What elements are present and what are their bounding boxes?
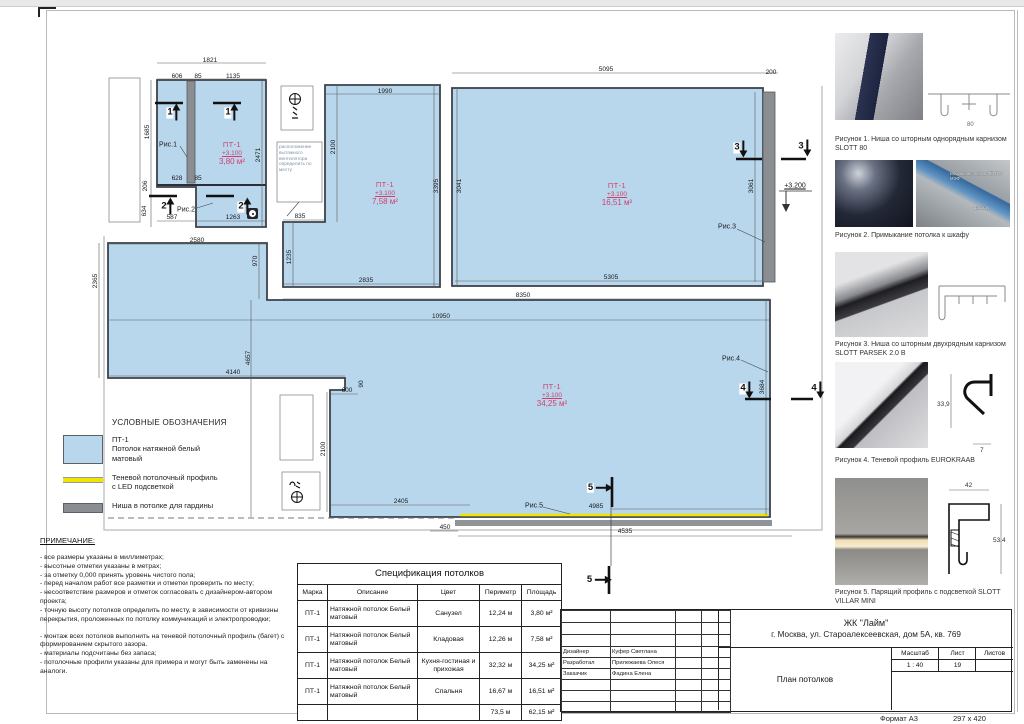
- spec-cell: ПТ-1: [298, 601, 328, 627]
- title-block-cell: [611, 611, 676, 623]
- curtain-niche-bathroom: [187, 81, 195, 183]
- spec-cell: ПТ-1: [298, 679, 328, 705]
- title-block-cell: [611, 635, 676, 647]
- level-arrow: [779, 191, 812, 212]
- spec-header-cell: Цвет: [418, 585, 480, 601]
- figure-4-diagram: 33,9 7: [935, 366, 1009, 454]
- figure-5-dim-w: 42: [965, 482, 973, 489]
- project-address: г. Москва, ул. Староалексеевская, дом 5А…: [771, 630, 961, 639]
- scale-value: 1 : 40: [891, 660, 938, 672]
- figure-2-caption: Рисунок 2. Примыкание потолка к шкафу: [835, 231, 1013, 240]
- note-line: [40, 625, 296, 633]
- title-block-cell: [676, 623, 702, 635]
- title-block-row: [562, 702, 731, 713]
- title-block-row: [562, 635, 731, 647]
- title-block-cell: [562, 691, 611, 702]
- spec-total-cell: 62,15 м²: [522, 705, 562, 721]
- title-block-cell: [676, 669, 702, 680]
- figure-5-photo: [835, 478, 928, 585]
- notes-title: ПРИМЕЧАНИЕ:: [40, 536, 296, 545]
- legend-swatch: [63, 473, 103, 483]
- exhaust-fan-icon: [247, 208, 258, 219]
- figure-2-photo-right: Вобранная плёнка ЛЕОТУ/МЭФ фасадь: [916, 160, 1010, 227]
- title-block-cell: Куфер Светлана: [611, 647, 676, 658]
- figure-4-dim-w: 7: [980, 447, 984, 454]
- figure-5-caption: Рисунок 5. Парящий профиль с подсветкой …: [835, 588, 1013, 606]
- figure-4-dim-h: 33,9: [937, 401, 950, 408]
- figure-2-photo-label-2: фасадь: [974, 206, 989, 211]
- drawing-title: План потолков: [718, 648, 891, 710]
- spec-total-cell: 73,5 м: [480, 705, 522, 721]
- title-block-cell: Дизайнер: [562, 647, 611, 658]
- title-block-cell: [562, 611, 611, 623]
- note-line: - материалы подсчитаны без запаса;: [40, 650, 296, 659]
- spec-cell: Натяжной потолок Белый матовый: [328, 601, 418, 627]
- figure-5: 42 53.4 Рисунок 5. Парящий профиль с под…: [835, 476, 1013, 608]
- sheet-label: Лист: [938, 648, 976, 660]
- sheets-value: [975, 660, 1013, 672]
- figure-1-caption: Рисунок 1. Ниша со шторным однорядным ка…: [835, 135, 1013, 153]
- title-block-cell: [676, 680, 702, 691]
- title-block-row: РазработалПрилежаева Олеся: [562, 658, 731, 669]
- spec-row: ПТ-1Натяжной потолок Белый матовыйСпальн…: [298, 679, 562, 705]
- title-block-row: ЗаказчикФадина Елена: [562, 669, 731, 680]
- figure-1-dim: 80: [967, 122, 974, 128]
- figure-3: Рисунок 3. Ниша со шторным двухрядным ка…: [835, 250, 1013, 358]
- spec-cell: Кладовая: [418, 627, 480, 653]
- title-block-cell: Прилежаева Олеся: [611, 658, 676, 669]
- figure-3-diagram: [931, 276, 1011, 334]
- figure-5-diagram: 42 53.4: [935, 478, 1009, 588]
- figure-1: 80 Рисунок 1. Ниша со шторным однорядным…: [835, 33, 1013, 158]
- title-block-row: [562, 691, 731, 702]
- spec-cell: 7,58 м²: [522, 627, 562, 653]
- title-block-row: [562, 680, 731, 691]
- title-block-cell: [611, 623, 676, 635]
- window-wall-bar: [455, 520, 772, 526]
- spec-cell: Санузел: [418, 601, 480, 627]
- project-name: ЖК "Лайм": [844, 618, 889, 628]
- title-block-row: [562, 623, 731, 635]
- spec-cell: Спальня: [418, 679, 480, 705]
- spec-header-cell: Периметр: [480, 585, 522, 601]
- spec-header-cell: Площадь: [522, 585, 562, 601]
- note-line: - несоответствие размеров и отметок согл…: [40, 589, 296, 607]
- legend-title: УСЛОВНЫЕ ОБОЗНАЧЕНИЯ: [112, 418, 298, 427]
- legend-swatch: [63, 435, 103, 464]
- spec-row: ПТ-1Натяжной потолок Белый матовыйКладов…: [298, 627, 562, 653]
- note-line: - монтаж всех потолков выполнить на тене…: [40, 633, 296, 651]
- spec-cell: 16,51 м²: [522, 679, 562, 705]
- spec-total-cell: [418, 705, 480, 721]
- title-block-cell: [611, 702, 676, 713]
- spec-table: Спецификация потолков МаркаОписаниеЦветП…: [297, 563, 562, 721]
- spec-cell: 12,26 м: [480, 627, 522, 653]
- spec-row: ПТ-1Натяжной потолок Белый матовыйСанузе…: [298, 601, 562, 627]
- title-block-row: ДизайнерКуфер Светлана: [562, 647, 731, 658]
- spec-cell: Натяжной потолок Белый матовый: [328, 627, 418, 653]
- title-block-cell: [676, 702, 702, 713]
- spec-cell: 16,67 м: [480, 679, 522, 705]
- title-block-cell: Разработал: [562, 658, 611, 669]
- sheets-label: Листов: [975, 648, 1013, 660]
- legend-item-label: Ниша в потолке для гардины: [112, 501, 213, 510]
- legend-item: Теневой потолочный профиль с LED подсвет…: [63, 473, 298, 492]
- spec-cell: 32,32 м: [480, 653, 522, 679]
- legend: УСЛОВНЫЕ ОБОЗНАЧЕНИЯ ПТ-1 Потолок натяжн…: [63, 418, 298, 522]
- title-block-cell: [611, 680, 676, 691]
- spec-cell: 34,25 м²: [522, 653, 562, 679]
- legend-swatch-fill: [63, 435, 103, 464]
- sheet-value: 19: [938, 660, 976, 672]
- spec-cell: Натяжной потолок Белый матовый: [328, 653, 418, 679]
- spec-cell: Натяжной потолок Белый матовый: [328, 679, 418, 705]
- spec-header-row: МаркаОписаниеЦветПериметрПлощадь: [298, 585, 562, 601]
- room-bedroom: [452, 88, 763, 286]
- figure-4-caption: Рисунок 4. Теневой профиль EUROKRAAB: [835, 456, 1013, 465]
- title-block-cell: [676, 658, 702, 669]
- figure-3-photo: [835, 252, 928, 337]
- figure-2-photo-left: [835, 160, 913, 227]
- title-block-cell: [676, 611, 702, 623]
- note-line: - потолочные профили указаны для примера…: [40, 659, 296, 677]
- figure-2: Вобранная плёнка ЛЕОТУ/МЭФ фасадь Рисуно…: [835, 160, 1013, 248]
- title-block-cell: [676, 691, 702, 702]
- title-block: ДизайнерКуфер СветланаРазработалПрилежае…: [560, 609, 1012, 712]
- title-block-cell: [562, 702, 611, 713]
- scale-label: Масштаб: [891, 648, 938, 660]
- spec-cell: ПТ-1: [298, 627, 328, 653]
- figure-2-photo-label-1: Вобранная плёнка ЛЕОТУ/МЭФ: [950, 172, 1010, 181]
- title-block-row: [562, 611, 731, 623]
- notes: ПРИМЕЧАНИЕ: - все размеры указаны в милл…: [40, 536, 296, 677]
- project-cell: ЖК "Лайм" г. Москва, ул. Староалексеевск…: [718, 610, 1013, 648]
- spec-table-title: Спецификация потолков: [298, 564, 562, 585]
- curtain-niche-bedroom: [763, 92, 775, 282]
- spec-header-cell: Марка: [298, 585, 328, 601]
- legend-item-label: Теневой потолочный профиль с LED подсвет…: [112, 473, 218, 492]
- format-size: 297 x 420: [953, 714, 986, 723]
- figure-5-dim-h: 53.4: [993, 537, 1006, 544]
- title-block-cell: [676, 635, 702, 647]
- figure-4-photo: [835, 362, 928, 448]
- title-block-cell: [611, 691, 676, 702]
- title-block-cell: Заказчик: [562, 669, 611, 680]
- figure-4: 33,9 7 Рисунок 4. Теневой профиль EUROKR…: [835, 360, 1013, 472]
- note-line: - перед началом работ все разметки и отм…: [40, 580, 296, 589]
- title-block-grid: ДизайнерКуфер СветланаРазработалПрилежае…: [561, 610, 731, 713]
- legend-swatch-niche: [63, 503, 103, 513]
- legend-item: ПТ-1 Потолок натяжной белый матовый: [63, 435, 298, 464]
- notes-body: - все размеры указаны в миллиметрах;- вы…: [40, 554, 296, 677]
- legend-swatch: [63, 501, 103, 513]
- title-block-cell: [676, 647, 702, 658]
- note-line: - точную высоту потолков определить по м…: [40, 607, 296, 625]
- format-label: Формат А3: [880, 714, 918, 723]
- scale-grid: Масштаб Лист Листов 1 : 40 19: [891, 648, 1013, 710]
- note-line: - высотные отметки указаны в метрах;: [40, 563, 296, 572]
- title-block-cell: [562, 635, 611, 647]
- niche-level-mark: +3.200: [784, 183, 806, 190]
- legend-item-label: ПТ-1 Потолок натяжной белый матовый: [112, 435, 200, 463]
- spec-total-cell: [298, 705, 328, 721]
- spec-total-row: 73,5 м62,15 м²: [298, 705, 562, 721]
- legend-swatch-led: [63, 477, 103, 483]
- spec-cell: 12,24 м: [480, 601, 522, 627]
- figure-3-caption: Рисунок 3. Ниша со шторным двухрядным ка…: [835, 340, 1013, 358]
- title-block-cell: [562, 623, 611, 635]
- spec-cell: ПТ-1: [298, 653, 328, 679]
- spec-header-cell: Описание: [328, 585, 418, 601]
- spec-total-cell: [328, 705, 418, 721]
- legend-item: Ниша в потолке для гардины: [63, 501, 298, 513]
- figure-1-photo: [835, 33, 923, 120]
- title-block-cell: [562, 680, 611, 691]
- note-line: - все размеры указаны в миллиметрах;: [40, 554, 296, 563]
- spec-cell: Кухня-гостиная и прихожая: [418, 653, 480, 679]
- spec-cell: 3,80 м²: [522, 601, 562, 627]
- title-block-cell: Фадина Елена: [611, 669, 676, 680]
- fan-note: расположение вытяжного вентилятора опред…: [279, 145, 321, 174]
- figure-1-diagram: 80: [925, 80, 1013, 130]
- spec-row: ПТ-1Натяжной потолок Белый матовыйКухня-…: [298, 653, 562, 679]
